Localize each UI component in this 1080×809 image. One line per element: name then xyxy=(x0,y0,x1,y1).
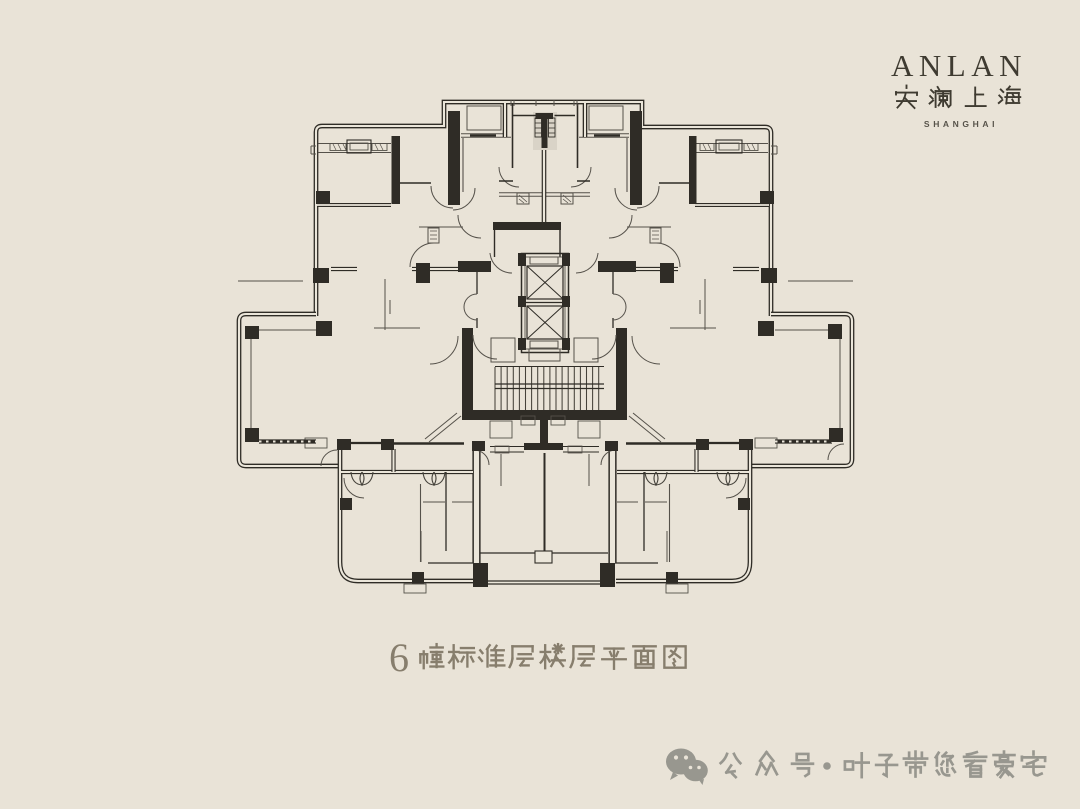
svg-text:6: 6 xyxy=(389,635,409,680)
svg-text:SHANGHAI: SHANGHAI xyxy=(924,119,998,129)
svg-text:ANLAN: ANLAN xyxy=(891,48,1027,83)
